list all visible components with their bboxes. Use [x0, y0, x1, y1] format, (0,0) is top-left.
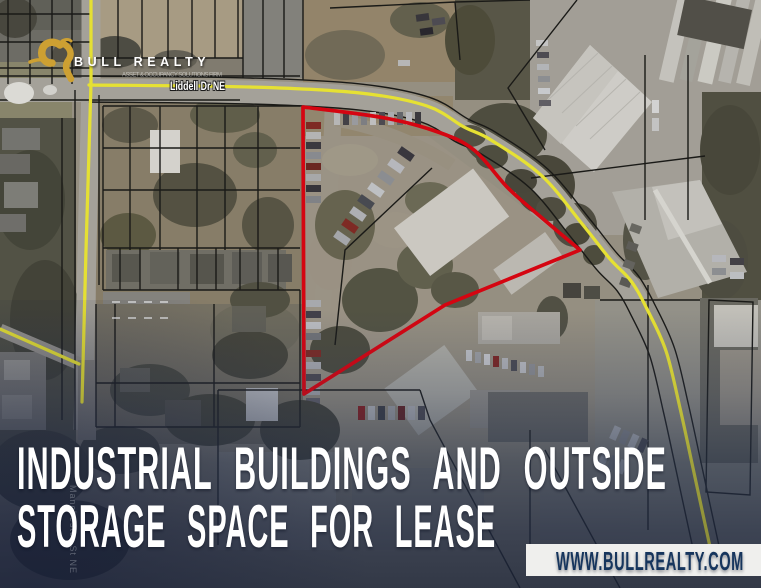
svg-text:BULL REALTY: BULL REALTY — [74, 55, 210, 69]
svg-text:ASSET & OCCUPANCY SOLUTIONS FI: ASSET & OCCUPANCY SOLUTIONS FIRM — [122, 73, 222, 79]
